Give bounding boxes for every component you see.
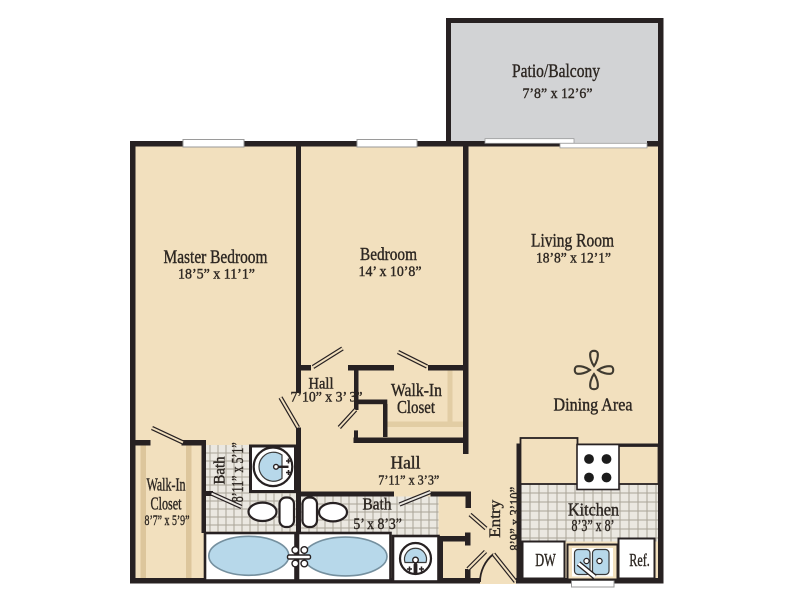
svg-text:5’ x 8’3”: 5’ x 8’3” — [353, 516, 402, 533]
svg-text:Bedroom: Bedroom — [360, 244, 417, 264]
svg-text:8’7” x 5’9”: 8’7” x 5’9” — [145, 513, 190, 529]
svg-text:Dining Area: Dining Area — [554, 395, 633, 415]
svg-text:DW: DW — [535, 550, 556, 570]
svg-text:Hall: Hall — [391, 453, 421, 473]
svg-text:Bath: Bath — [212, 457, 229, 485]
svg-text:Bath: Bath — [363, 495, 392, 514]
svg-text:8’3” x 8’: 8’3” x 8’ — [572, 516, 615, 535]
svg-text:14’ x 10’8”: 14’ x 10’8” — [359, 264, 422, 280]
svg-text:Patio/Balcony: Patio/Balcony — [512, 61, 600, 82]
svg-text:7’8” x 12’6”: 7’8” x 12’6” — [523, 86, 593, 102]
svg-text:8’9” x 3’10”: 8’9” x 3’10” — [506, 487, 525, 551]
svg-text:7’10” x 3’ 3”: 7’10” x 3’ 3” — [291, 390, 363, 406]
svg-text:Master Bedroom: Master Bedroom — [164, 247, 268, 268]
svg-text:Closet: Closet — [151, 494, 182, 514]
svg-text:7’11” x 3’3”: 7’11” x 3’3” — [378, 473, 439, 488]
svg-text:Entry: Entry — [487, 500, 504, 538]
svg-text:Living Room: Living Room — [531, 232, 615, 252]
svg-text:18’8” x 12’1”: 18’8” x 12’1” — [536, 251, 611, 267]
svg-text:Closet: Closet — [397, 397, 435, 417]
svg-text:Walk-In: Walk-In — [147, 475, 186, 495]
svg-text:18’5” x 11’1”: 18’5” x 11’1” — [178, 267, 255, 283]
svg-text:8’11” x 5’1”: 8’11” x 5’1” — [228, 442, 247, 502]
svg-text:Ref.: Ref. — [629, 550, 650, 570]
